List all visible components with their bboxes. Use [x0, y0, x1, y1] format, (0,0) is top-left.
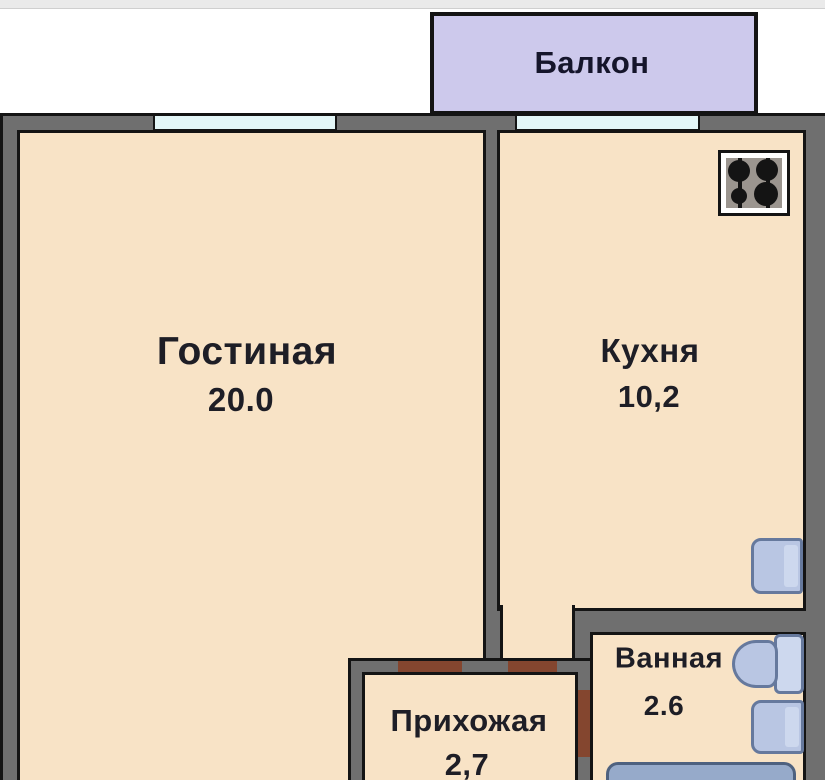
kitchen-floor-lower [500, 605, 575, 661]
sink-drainboard [785, 707, 799, 747]
door-kitchen-hallway [508, 658, 557, 675]
stove-burner [754, 182, 778, 206]
door-living-hallway [398, 658, 462, 675]
bathtub-icon [606, 762, 796, 780]
page-top-strip [0, 0, 825, 9]
toilet-icon [732, 640, 778, 688]
hallway-area: 2,7 [445, 747, 490, 783]
living-room-label: Гостиная [157, 330, 337, 374]
living-room-window [153, 114, 337, 131]
living-room-area: 20.0 [208, 381, 274, 419]
kitchen-label: Кухня [601, 332, 700, 370]
door-hallway-bathroom [575, 690, 593, 757]
floor-plan: Балкон Гостиная 20.0 Кухня 10,2 Прихожая… [0, 0, 825, 780]
stove-icon [718, 150, 790, 216]
hallway-label: Прихожая [391, 703, 548, 739]
sink-drainboard [784, 545, 798, 587]
balcony-label: Балкон [535, 45, 650, 81]
wall-living-kitchen [486, 127, 497, 661]
kitchen-window [515, 114, 700, 131]
kitchen-sink-icon [751, 538, 803, 594]
stove-burner [731, 188, 747, 204]
bathroom-area: 2.6 [644, 690, 684, 722]
toilet-tank-icon [774, 634, 804, 694]
stove-burner [756, 159, 778, 181]
stove-surface [726, 158, 782, 208]
bathroom-sink-icon [751, 700, 804, 754]
kitchen-area: 10,2 [618, 379, 680, 415]
stove-burner [728, 160, 750, 182]
bathroom-label: Ванная [615, 643, 723, 676]
